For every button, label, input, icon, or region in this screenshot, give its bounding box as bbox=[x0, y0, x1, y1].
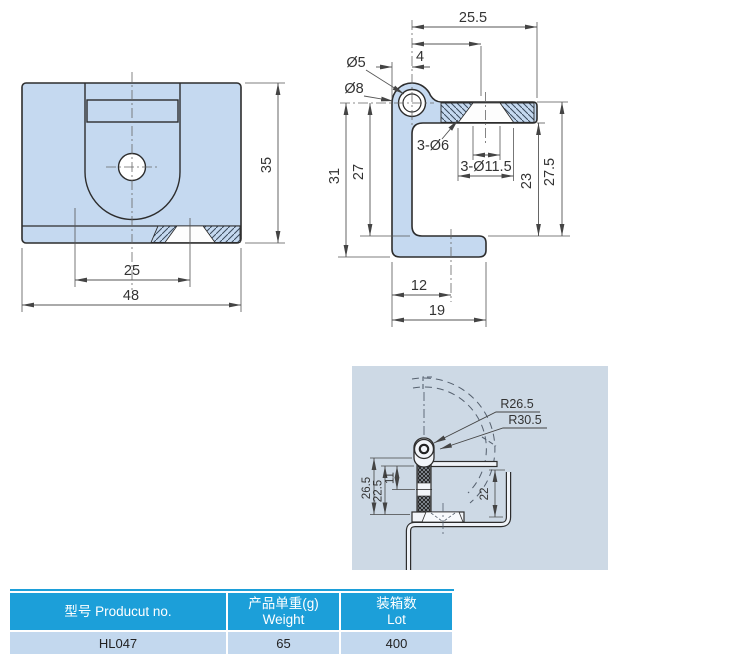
front-view: 25 48 35 bbox=[22, 72, 285, 312]
header-weight: 产品单重(g) Weight bbox=[228, 593, 339, 630]
dim-22-5-label: 22.5 bbox=[373, 480, 385, 502]
radius-outer-label: R30.5 bbox=[508, 413, 541, 427]
dim-26-5-label: 26.5 bbox=[361, 477, 373, 499]
dim-11-label: 11 bbox=[385, 472, 397, 484]
dim-22-label: 22 bbox=[479, 488, 491, 501]
dim-hole-offset-label: 12 bbox=[411, 278, 427, 294]
table-top-rule bbox=[10, 589, 454, 591]
dim-arm-length-label: 25.5 bbox=[459, 10, 487, 26]
dim-inner-height-label: 27 bbox=[351, 164, 367, 180]
header-weight-en: Weight bbox=[263, 612, 305, 628]
header-product-no-en: Producut no. bbox=[95, 604, 172, 619]
dia-holes-csk-label: 3-Ø11.5 bbox=[460, 159, 511, 175]
drawing-sheet: 25 48 35 25.5 4 bbox=[0, 0, 750, 662]
header-weight-cn: 产品单重(g) bbox=[248, 596, 319, 612]
header-lot-en: Lot bbox=[387, 612, 406, 628]
dim-total-height-label: 31 bbox=[327, 168, 343, 184]
header-lot: 装箱数 Lot bbox=[341, 593, 452, 630]
table-header-row: 型号 Producut no. 产品单重(g) Weight 装箱数 Lot bbox=[10, 593, 454, 630]
frame-sheet bbox=[431, 462, 497, 467]
cell-weight: 65 bbox=[228, 632, 339, 654]
product-table: 型号 Producut no. 产品单重(g) Weight 装箱数 Lot H… bbox=[10, 589, 454, 654]
dia-pin-hole-label: Ø5 bbox=[346, 55, 365, 71]
flange-countersink bbox=[422, 512, 463, 522]
radius-inner-label: R26.5 bbox=[500, 397, 533, 411]
dia-holes-small-label: 3-Ø6 bbox=[417, 138, 449, 154]
dim-hole-spacing-label: 25 bbox=[124, 263, 140, 279]
side-view: 25.5 4 Ø5 Ø8 3-Ø6 3-Ø11.5 23 27.5 bbox=[327, 10, 570, 327]
pin-inner bbox=[420, 445, 428, 453]
dim-height-label: 35 bbox=[259, 157, 275, 173]
dim-arm-to-flange-label: 23 bbox=[519, 173, 535, 189]
installation-view: R26.5 R30.5 26.5 22.5 11 22 bbox=[352, 366, 608, 570]
table-data-row: HL047 65 400 bbox=[10, 632, 454, 654]
technical-drawing: 25 48 35 25.5 4 bbox=[0, 0, 750, 662]
header-product-no: 型号 Producut no. bbox=[10, 593, 226, 630]
cell-lot: 400 bbox=[341, 632, 452, 654]
dim-leg-thickness-label: 4 bbox=[416, 49, 424, 65]
dim-arm-top-to-flange-label: 27.5 bbox=[542, 158, 558, 186]
dim-flange-length-label: 19 bbox=[429, 303, 445, 319]
cell-product-no: HL047 bbox=[10, 632, 226, 654]
header-lot-cn: 装箱数 bbox=[376, 596, 417, 612]
header-product-no-cn: 型号 bbox=[64, 604, 91, 619]
dia-knuckle-label: Ø8 bbox=[344, 81, 363, 97]
install-panel-bg bbox=[352, 366, 608, 570]
dim-width-label: 48 bbox=[123, 288, 139, 304]
